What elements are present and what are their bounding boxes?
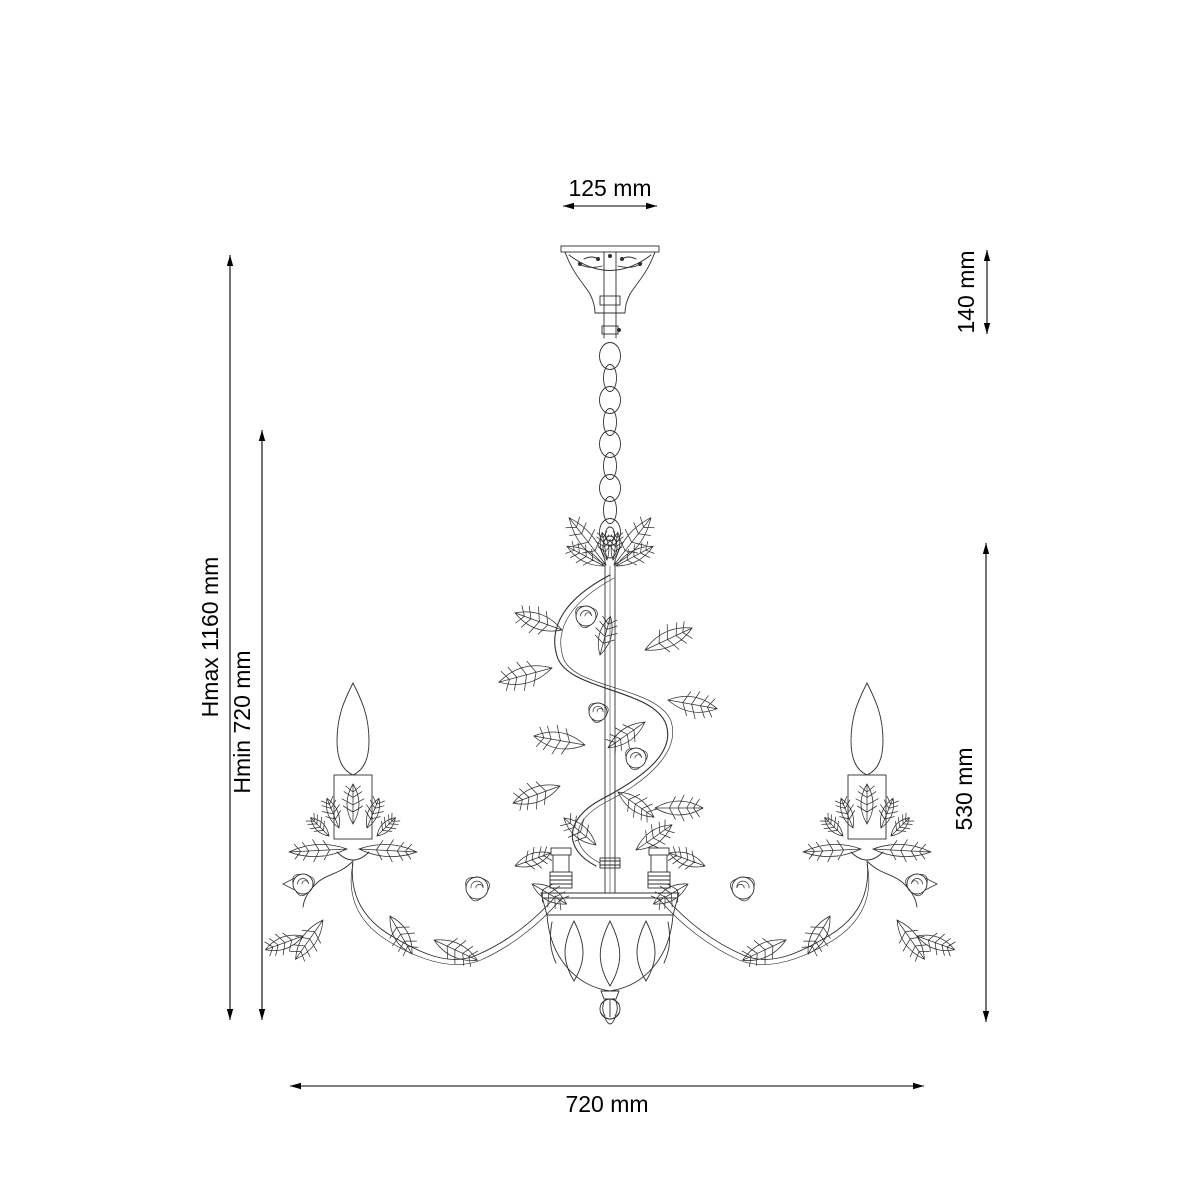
dim-height-max: Hmax 1160 mm [197, 255, 233, 1020]
arm-leaf [291, 920, 324, 961]
left-arm-assembly [265, 683, 572, 967]
bottom-finial [600, 991, 620, 1024]
arm-curve-outer [352, 860, 556, 959]
canopy-top-plate [561, 246, 659, 252]
dim-height-max-label: Hmax 1160 mm [197, 557, 223, 718]
chain-link [600, 343, 621, 370]
canopy-dots [578, 254, 642, 266]
arm-leaf-rose-decoration [265, 784, 569, 967]
dim-canopy-width-label: 125 mm [568, 175, 651, 201]
dim-body-width-label: 720 mm [565, 1091, 648, 1117]
vine-and-leaves [499, 575, 717, 866]
rose-shape [283, 874, 314, 896]
arm-outer-branch [303, 862, 352, 907]
vine-leaf [668, 692, 717, 719]
vine-leaf [595, 616, 617, 655]
dim-body-height: 530 mm [951, 543, 989, 1022]
arm-leaf [515, 847, 552, 870]
ceiling-canopy [561, 246, 659, 313]
chandelier-dimension-drawing: 125 mm 140 mm Hmax 1160 mm Hmin 720 mm [0, 0, 1200, 1200]
rose-shape [466, 877, 490, 901]
rose-shape [626, 748, 648, 770]
dim-canopy-height-label: 140 mm [953, 250, 979, 333]
canopy-stem [600, 252, 621, 338]
chandelier-artwork [265, 246, 955, 1024]
chain-link [600, 387, 621, 414]
candle-bulb [337, 683, 369, 775]
center-bowl [541, 893, 679, 991]
dim-height-min: Hmin 720 mm [229, 430, 265, 1020]
hanging-chain [600, 343, 621, 546]
right-arm-assembly [648, 683, 955, 967]
dim-body-height-label: 530 mm [951, 747, 977, 830]
chain-link [600, 475, 621, 502]
dim-body-width: 720 mm [290, 1083, 924, 1117]
vine-leaf [515, 606, 562, 635]
vine-leaf [513, 782, 560, 811]
bowl-body [547, 915, 673, 991]
drawing-sheet: 125 mm 140 mm Hmax 1160 mm Hmin 720 mm [0, 0, 1200, 1200]
bobeche-leaf [342, 784, 364, 824]
vine-leaf [636, 820, 674, 850]
vine-leaf [618, 792, 656, 822]
arm-leaf [434, 938, 478, 966]
bobeche-leaf [359, 840, 417, 862]
vine-leaf [645, 622, 692, 652]
central-column [600, 560, 620, 893]
rose-shape [576, 606, 598, 628]
arm-curve-inner [351, 864, 561, 965]
chain-link [600, 431, 621, 458]
vine-leaf [534, 725, 585, 754]
bobeche-cup [337, 852, 369, 860]
bobeche-leaf [289, 840, 347, 862]
top-leaf-crown [566, 517, 654, 566]
dimension-annotations: 125 mm 140 mm Hmax 1160 mm Hmin 720 mm [197, 175, 990, 1117]
vine-leaf [499, 661, 552, 690]
vine-leaf [655, 795, 703, 821]
dim-height-min-label: Hmin 720 mm [229, 650, 255, 793]
dim-canopy-height: 140 mm [953, 250, 990, 334]
dim-canopy-width: 125 mm [563, 175, 657, 209]
